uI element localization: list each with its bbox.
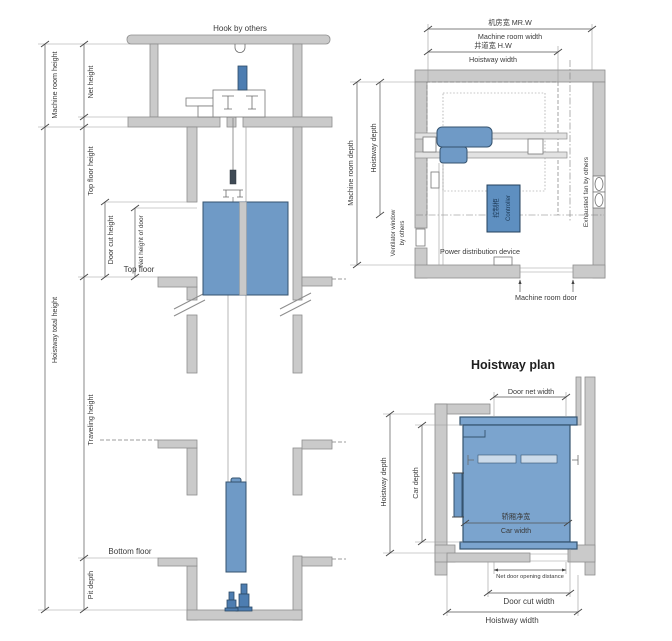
elevator-technical-drawing: Hook by others	[0, 0, 672, 641]
hoistway-plan: Hoistway plan 轿厢净宽	[379, 358, 595, 625]
label-hoistway-total-height: Hoistway total height	[50, 297, 59, 363]
power-distribution-device	[494, 257, 512, 265]
label-car-width-cn: 轿厢净宽	[502, 512, 531, 521]
label-hw-cn: 井道宽 H.W	[474, 41, 512, 50]
landing-door-sill	[460, 417, 577, 425]
dim-hoistway-depth: Hoistway depth	[379, 411, 394, 556]
label-controller-en: Controller	[506, 195, 512, 221]
dim-machine-room-door: Machine room door	[515, 280, 578, 302]
counterweight-plan	[452, 473, 464, 517]
car-door-sill	[460, 542, 577, 549]
label-hw-en: Hoistway width	[469, 55, 517, 64]
hook-icon	[235, 44, 245, 53]
dim-net-door-opening: Net door opening distance	[494, 570, 566, 580]
car-crosshead	[223, 190, 243, 197]
bottom-floor-slab	[158, 558, 197, 566]
dim-hoistway-width-top: 井道宽 H.W Hoistway width	[424, 41, 562, 64]
label-door-net-width: Door net width	[508, 387, 554, 396]
diagram-canvas: Hook by others	[0, 0, 672, 641]
machine-room-left-wall	[150, 44, 158, 117]
dim-door-net-width: Door net width	[490, 387, 570, 400]
dim-machine-room-depth: Machine room depth	[346, 79, 361, 268]
machine-room-plan: 控制柜 Controller Power distribution device…	[346, 18, 605, 302]
label-door-cut-height: Door cut height	[106, 216, 115, 265]
top-floor-slab	[158, 277, 197, 287]
rail-band	[240, 202, 247, 295]
guide-rail-right	[572, 455, 578, 465]
label-machine-room-depth: Machine room depth	[346, 140, 355, 206]
dim-hoistway-width-bottom: Hoistway width	[443, 609, 582, 625]
dim-door-cut-height: Door cut height	[101, 199, 115, 280]
label-hoistway-width: Hoistway width	[485, 616, 538, 625]
label-hoistway-depth-mr: Hoistway depth	[369, 123, 378, 172]
mid-floor-slab	[158, 440, 197, 448]
pit-floor	[187, 610, 302, 620]
machine-floor-slab	[128, 117, 220, 127]
hook-label: Hook by others	[213, 24, 267, 33]
label-ventilator-1: Ventilator window	[391, 209, 397, 256]
dim-hoistway-depth-plan: Hoistway depth	[369, 79, 384, 218]
hoistway-plan-title: Hoistway plan	[471, 358, 555, 372]
controller-cabinet: 控制柜 Controller	[487, 185, 520, 232]
hp-bottom-wall	[447, 553, 530, 562]
mr-bottom-wall	[415, 265, 520, 278]
label-mrw-cn: 机房宽 MR.W	[488, 18, 532, 27]
traction-machine	[186, 66, 265, 117]
dim-machine-room-width: 机房宽 MR.W Machine room width	[424, 18, 596, 41]
car-plan	[463, 425, 570, 542]
elevation-view: Hook by others	[38, 24, 346, 620]
handrail-slot	[478, 455, 516, 463]
traction-machine-plan	[437, 127, 492, 147]
label-door-cut-width: Door cut width	[503, 597, 554, 606]
exhaust-fan	[593, 176, 605, 208]
label-top-floor: Top floor	[124, 265, 155, 274]
label-net-door-opening: Net door opening distance	[496, 574, 564, 580]
mr-right-wall	[593, 82, 605, 176]
rope-hitch	[230, 170, 236, 184]
label-mrw-en: Machine room width	[478, 32, 542, 41]
machine-room-right-wall	[293, 44, 302, 117]
buffers	[225, 584, 252, 611]
label-traveling-height: Traveling height	[86, 395, 95, 446]
dim-door-cut-width: Door cut width	[484, 590, 574, 606]
counterweight	[226, 482, 246, 572]
label-car-depth: Car depth	[411, 467, 420, 499]
ventilator-window	[416, 229, 425, 246]
label-ventilator-2: by others	[400, 221, 406, 246]
hoistway-left-wall	[187, 127, 197, 620]
label-machine-room-door: Machine room door	[515, 293, 578, 302]
label-top-floor-height: Top floor height	[86, 146, 95, 195]
hoistway-right-wall	[293, 127, 302, 620]
label-hoistway-depth: Hoistway depth	[379, 457, 388, 506]
ceiling-slab	[127, 35, 330, 44]
handrail-slot	[521, 455, 557, 463]
label-power-distribution: Power distribution device	[440, 247, 520, 256]
label-controller-cn: 控制柜	[491, 198, 500, 218]
label-net-height: Net height	[86, 66, 95, 99]
label-machine-room-height: Machine room height	[50, 51, 59, 118]
label-bottom-floor: Bottom floor	[108, 547, 151, 556]
motor	[238, 66, 247, 90]
label-net-height-of-door: Net height of door	[138, 214, 145, 267]
dim-car-depth: Car depth	[411, 422, 426, 545]
label-exhausted-fan: Exhausted fan by others	[583, 156, 590, 227]
mr-top-wall	[415, 70, 605, 82]
label-car-width-en: Car width	[501, 526, 531, 535]
label-pit-depth: Pit depth	[86, 571, 95, 599]
